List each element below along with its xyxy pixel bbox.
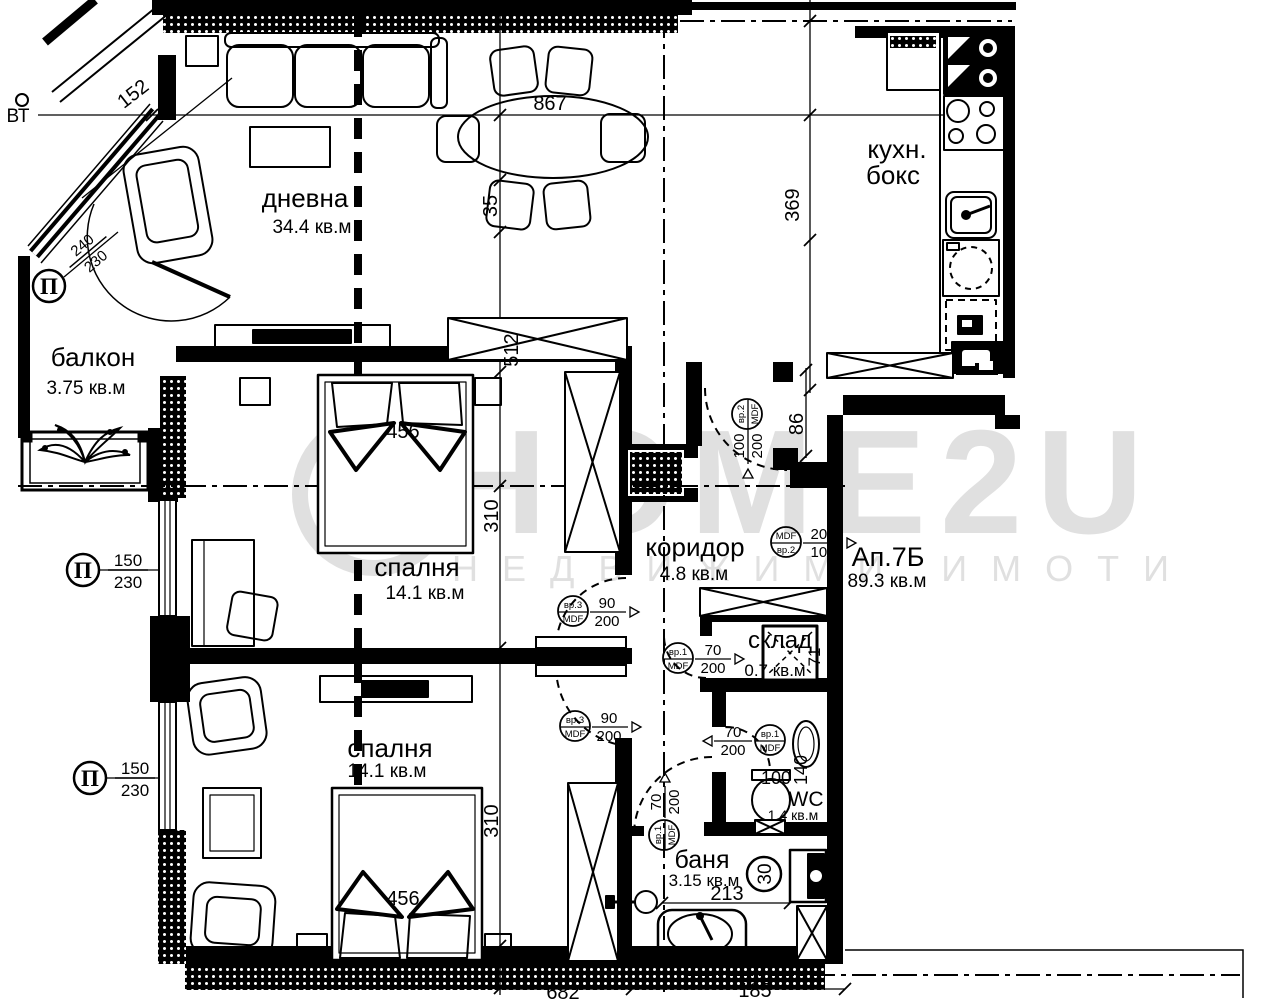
vt-marker-icon [16,94,28,106]
svg-text:вр.3: вр.3 [564,600,582,611]
armchair-living [121,144,215,266]
dim-entry-opening: 86 [786,413,808,435]
side-table [186,36,218,66]
svg-text:200: 200 [810,526,835,543]
sofa [225,33,447,108]
shoe-rack-icon [962,359,975,366]
corridor-name: коридор [645,532,744,562]
svg-text:вр.3: вр.3 [566,715,584,726]
vt-label: ВТ [6,106,29,127]
dim-table-gap: 35 [480,195,502,217]
svg-text:200: 200 [596,728,621,745]
dim-bottom-a: 682 [546,982,579,1000]
dim-bottom-b: 185 [738,980,771,1000]
dim-bed2-width: 456 [386,888,419,910]
oven-icon [952,342,1004,372]
svg-text:MDF: MDF [750,404,761,425]
dim-bed1-width: 456 [386,421,419,443]
window-tag-3: П 150 230 [74,759,155,800]
storage-area: 0.7 кв.м [744,661,805,680]
svg-text:вр.2: вр.2 [777,545,795,556]
dresser [320,676,472,702]
apartment-area: 89.3 кв.м [847,571,926,592]
planter-box [22,425,148,490]
bedroom1-area: 14.1 кв.м [385,583,464,604]
kitchen-name-2: бокс [866,160,920,190]
chair [489,45,539,97]
storage-name: склад [748,627,812,654]
svg-text:MDF: MDF [667,825,678,846]
dim-bath-fixture: 30 [755,863,776,884]
apartment-name: Ап.7Б [852,542,925,572]
dim-top-width: 867 [533,93,566,115]
sink-icon [946,192,996,238]
floor-plan-drawing: дневна 34.4 кв.м кухн. бокс балкон 3.75 … [0,0,1265,1000]
dim-wc-width: 100 [761,768,791,788]
living-room-area: 34.4 кв.м [272,217,351,238]
dim-bedroom2-depth: 310 [481,804,503,837]
nightstand [475,378,501,405]
svg-text:вр.1: вр.1 [653,826,664,844]
dim-storage-width: 71 [805,648,824,667]
stove-icon [944,96,1004,150]
svg-text:П: П [40,274,58,299]
svg-text:70: 70 [725,724,742,741]
wardrobe-bedroom1 [565,372,620,552]
dim-wall-offset: 512 [501,333,523,366]
chair [543,180,592,230]
nightstand [240,378,270,405]
bed-1 [318,375,473,553]
kitchen-units [887,32,1004,372]
svg-text:вр.1: вр.1 [761,729,779,740]
svg-text:200: 200 [749,433,766,458]
svg-text:вр.1: вр.1 [669,647,687,658]
dim-kitchen-depth: 369 [782,188,804,221]
side-table-bedroom2 [203,788,261,858]
door-tag-wc: вр.1 MDF 70 200 [703,724,785,759]
wardrobe-bedroom2 [568,783,618,961]
wc-area: 1.4 кв.м [768,807,818,823]
svg-text:230: 230 [114,573,142,592]
svg-text:200: 200 [700,660,725,677]
svg-text:200: 200 [666,789,683,814]
svg-text:MDF: MDF [776,531,797,542]
dining-set [437,45,648,230]
svg-text:150: 150 [114,551,142,570]
floor-plan-canvas: HOME2U НЕДВИЖИМИ ИМОТИ [0,0,1265,1000]
chair [545,46,594,96]
hall-closet [700,588,827,616]
svg-text:90: 90 [599,595,616,612]
svg-text:70: 70 [648,794,665,811]
svg-text:70: 70 [705,642,722,659]
door-tag-bath: вр.1 MDF 70 200 [648,773,683,850]
bedroom2-name: спалня [347,733,432,763]
living-room-name: дневна [262,183,349,213]
svg-text:200: 200 [594,613,619,630]
svg-text:200: 200 [720,742,745,759]
fridge-icon [944,32,1004,94]
svg-text:П: П [81,766,99,791]
tv-stand [215,325,390,349]
bath-washer [797,906,827,960]
dim-wc-depth: 140 [791,755,811,785]
coffee-table [250,127,330,167]
svg-text:MDF: MDF [563,614,584,625]
door-tag-storage: вр.1 MDF 70 200 [663,642,744,677]
window-tag-2: П 150 230 [67,551,148,592]
bedroom1-name: спалня [374,552,459,582]
corridor-area: 4.8 кв.м [660,564,728,585]
svg-text:90: 90 [601,710,618,727]
svg-text:100: 100 [731,433,748,458]
desk-chair [226,590,279,641]
svg-text:150: 150 [121,759,149,778]
bath-name: баня [675,846,730,874]
balcony-name: балкон [51,342,135,372]
door-tag-bedroom1: вр.3 MDF 90 200 [558,595,639,630]
door-tag-corridor: MDF вр.2 200 100 [771,526,856,561]
svg-text:MDF: MDF [565,729,586,740]
vent-shaft [620,444,698,502]
bed-2 [332,788,482,960]
dim-bedroom1-depth: 310 [481,499,503,532]
dim-bath-width: 213 [710,883,743,905]
svg-text:П: П [74,558,92,583]
svg-text:MDF: MDF [760,743,781,754]
balcony-area: 3.75 кв.м [46,378,125,399]
balcony-glazing [28,0,168,263]
wardrobe-living [448,318,627,360]
bedroom2-area: 14.1 кв.м [347,761,426,782]
armchair-bedroom2-a [185,675,268,757]
svg-text:вр.2: вр.2 [736,405,747,423]
svg-text:100: 100 [810,544,835,561]
bath-column [790,850,826,902]
svg-text:MDF: MDF [668,661,689,672]
svg-text:230: 230 [121,781,149,800]
washing-machine-icon [943,240,999,296]
